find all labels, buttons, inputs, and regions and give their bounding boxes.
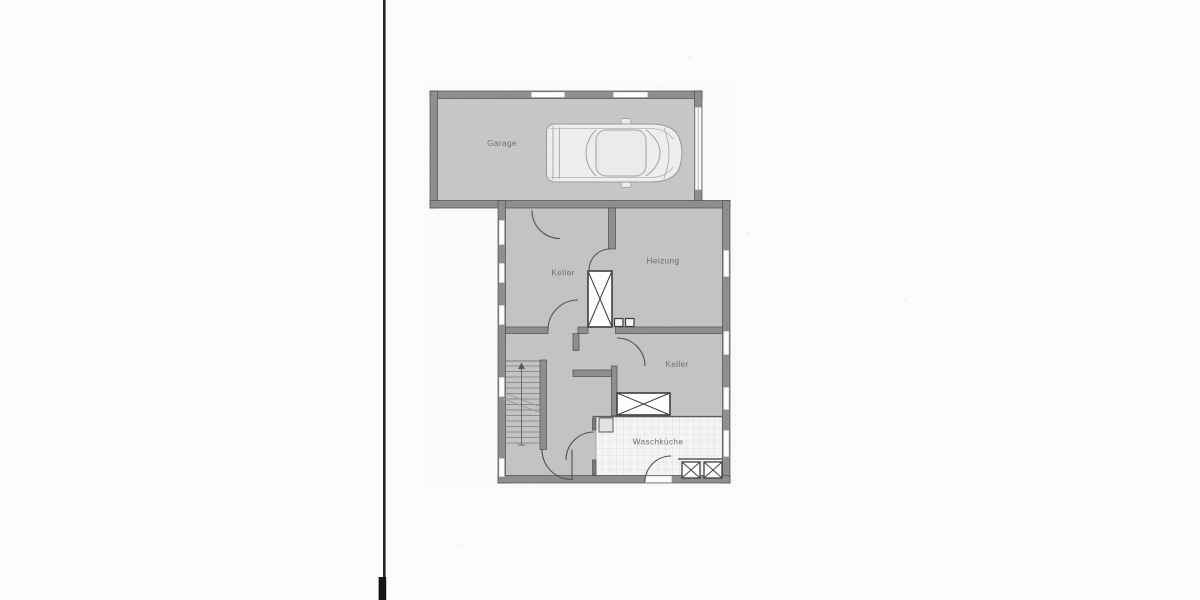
scan-artifacts: [379, 0, 387, 600]
scan-line-blob: [379, 577, 387, 600]
scan-grain-overlay: [424, 85, 736, 489]
floor-plan: Garage Keller Heizung Keller Waschküche: [0, 0, 1200, 600]
scan-line: [383, 0, 386, 600]
scanned-page: Garage Keller Heizung Keller Waschküche: [0, 0, 1200, 600]
